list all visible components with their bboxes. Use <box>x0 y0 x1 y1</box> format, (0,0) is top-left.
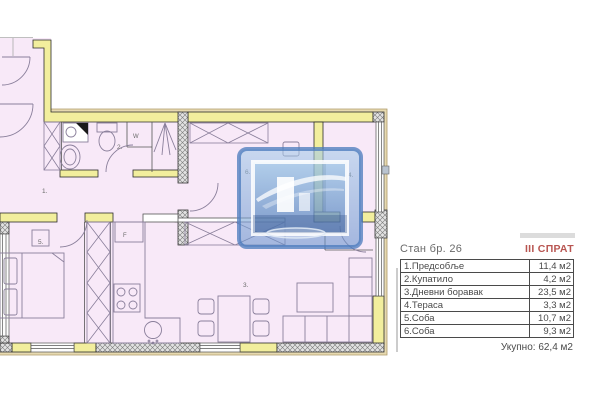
table-row: 3.Дневни боравак 23,5 м2 <box>401 286 573 299</box>
room-label-5: 5. <box>38 239 44 246</box>
apartment-number: Стан бр. 26 <box>400 243 462 255</box>
room-area: 11,4 м2 <box>529 260 573 272</box>
room-label-2: 2. <box>117 144 123 151</box>
area-table-panel: Стан бр. 26 III СПРАТ 1.Предсобље 11,4 м… <box>400 243 574 353</box>
area-table: 1.Предсобље 11,4 м2 2.Купатило 4,2 м2 3.… <box>400 259 574 338</box>
room-label-3: 3. <box>243 282 249 289</box>
faint-scale-bar <box>520 233 575 238</box>
room-name: 4.Тераса <box>401 299 529 311</box>
room-area: 4,2 м2 <box>529 273 573 285</box>
room-name: 6.Соба <box>401 325 529 337</box>
room-name: 5.Соба <box>401 312 529 324</box>
wardrobe-label: W <box>133 134 139 140</box>
window-hardware-icon <box>382 166 389 174</box>
table-row: 4.Тераса 3,3 м2 <box>401 299 573 312</box>
total-label: Укупно: <box>501 342 536 353</box>
room-name: 1.Предсобље <box>401 260 529 272</box>
floor-plan-page: 1. 2. 3. 4. 5. 6. W F Стан бр. 26 III СП… <box>0 0 600 400</box>
room-label-1: 1. <box>42 188 48 195</box>
table-row: 1.Предсобље 11,4 м2 <box>401 260 573 273</box>
table-row: 5.Соба 10,7 м2 <box>401 312 573 325</box>
room-area: 9,3 м2 <box>529 325 573 337</box>
total-area: Укупно: 62,4 м2 <box>400 342 574 353</box>
room-name: 2.Купатило <box>401 273 529 285</box>
watermark-logo <box>239 149 361 247</box>
table-row: 6.Соба 9,3 м2 <box>401 325 573 337</box>
logo-building <box>277 177 294 212</box>
logo-lens <box>267 228 325 238</box>
room-area: 23,5 м2 <box>529 286 573 298</box>
panel-header: Стан бр. 26 III СПРАТ <box>400 243 574 255</box>
room-name: 3.Дневни боравак <box>401 286 529 298</box>
table-row: 2.Купатило 4,2 м2 <box>401 273 573 286</box>
total-value: 62,4 м2 <box>538 342 573 353</box>
room-area: 3,3 м2 <box>529 299 573 311</box>
fridge-label: F <box>123 233 127 239</box>
room-area: 10,7 м2 <box>529 312 573 324</box>
floor-label: III СПРАТ <box>525 243 574 255</box>
